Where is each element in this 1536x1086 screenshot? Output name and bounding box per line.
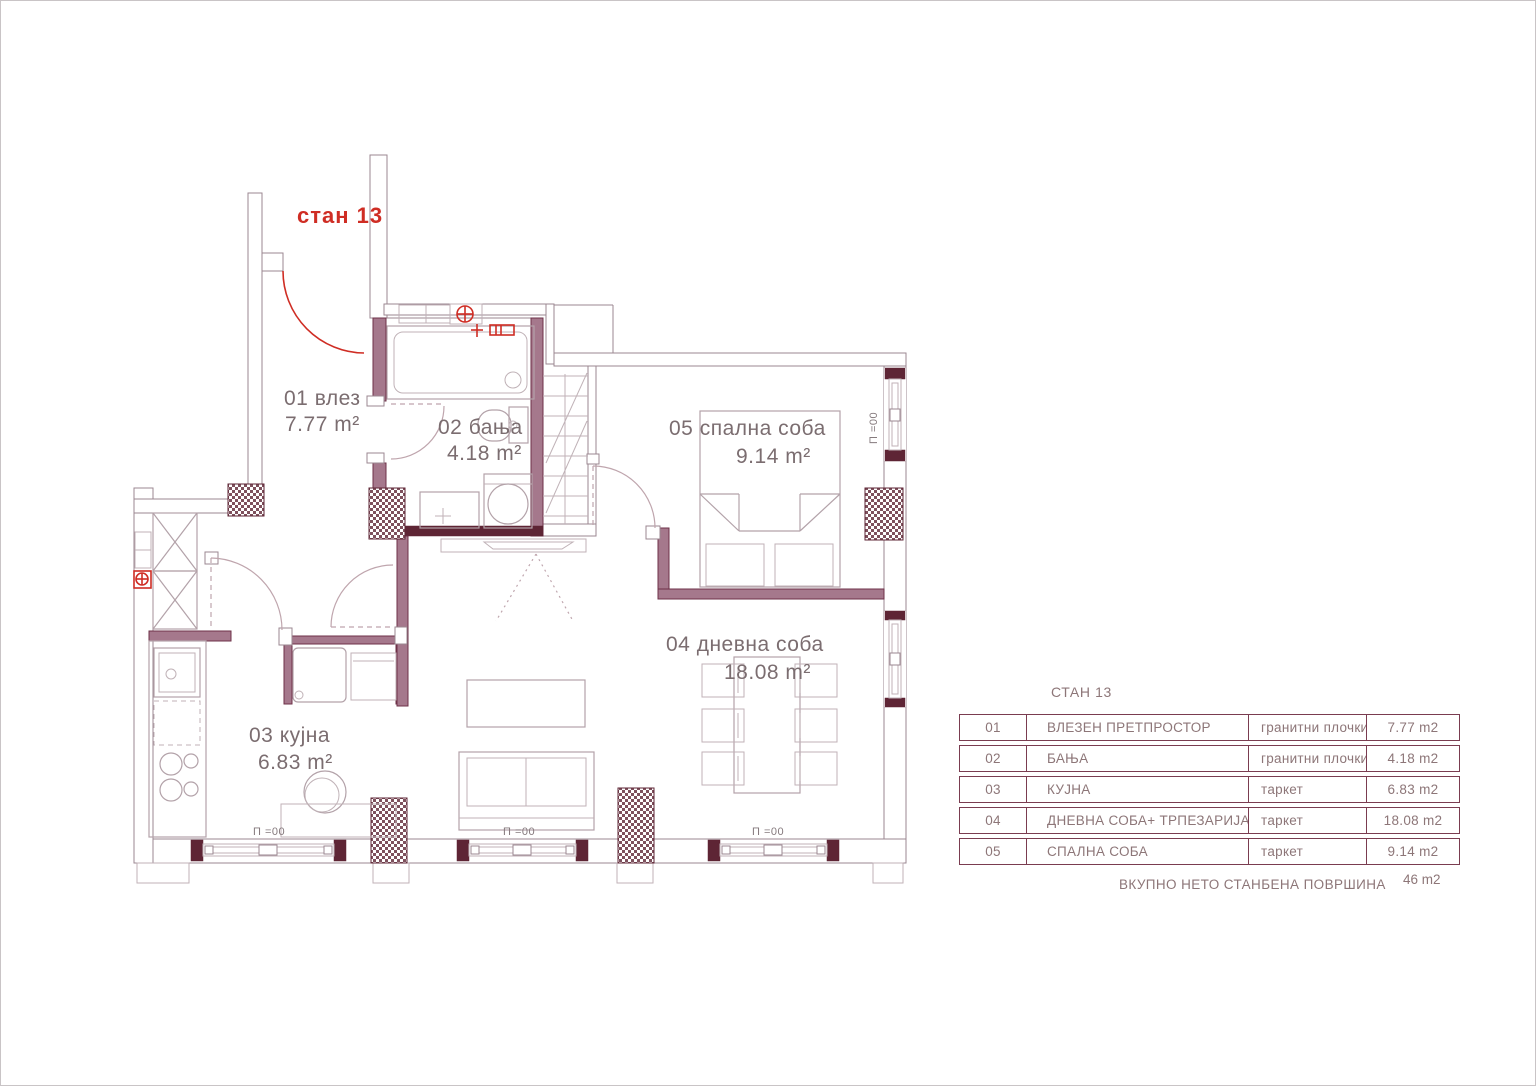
kitchen-sink — [154, 648, 200, 697]
row-number: 01 — [960, 715, 1027, 740]
parapet-label-3: П =00 — [752, 826, 784, 838]
room-area-kitchen: 6.83 m² — [258, 751, 333, 774]
row-name: ДНЕВНА СОБА+ ТРПЕЗАРИЈА — [1027, 808, 1249, 833]
washing-machine — [484, 474, 532, 528]
room-label-bedroom: 05 спална соба — [669, 417, 826, 440]
room-area-entry: 7.77 m² — [285, 413, 360, 436]
room-label-entry: 01 влез — [284, 387, 360, 410]
row-area: 18.08 m2 — [1367, 808, 1459, 833]
area-legend-table: СТАН 13 01 ВЛЕЗЕН ПРЕТПРОСТОР гранитни п… — [959, 684, 1460, 895]
table-row: 05 СПАЛНА СОБА таркет 9.14 m2 — [959, 838, 1460, 865]
door-hall — [331, 565, 393, 627]
row-number: 05 — [960, 839, 1027, 864]
room-label-bath: 02 бања — [438, 416, 523, 439]
table-row: 04 ДНЕВНА СОБА+ ТРПЕЗАРИЈА таркет 18.08 … — [959, 807, 1460, 834]
outer-walls — [134, 155, 906, 883]
row-floor: таркет — [1249, 808, 1367, 833]
sofa — [459, 752, 594, 830]
bathtub — [387, 326, 534, 399]
room-area-bath: 4.18 m² — [447, 442, 522, 465]
parapet-label-2: П =00 — [503, 826, 535, 838]
row-floor: гранитни плочки — [1249, 746, 1367, 771]
room-area-living: 18.08 m² — [724, 661, 811, 684]
total-label: ВКУПНО НЕТО СТАНБЕНА ПОВРШИНА — [1119, 877, 1386, 892]
row-name: БАЊА — [1027, 746, 1249, 771]
row-name: СПАЛНА СОБА — [1027, 839, 1249, 864]
kitchen-counter — [149, 641, 206, 837]
electrical-symbol-top — [457, 306, 473, 322]
row-number: 03 — [960, 777, 1027, 802]
row-floor: таркет — [1249, 777, 1367, 802]
bathroom-sink — [420, 492, 479, 528]
row-number: 02 — [960, 746, 1027, 771]
window-living-right — [708, 840, 839, 861]
table-title: СТАН 13 — [1051, 684, 1460, 700]
coffee-table — [467, 680, 585, 727]
window-living-side — [884, 611, 906, 707]
parapet-label-4: П =00 — [868, 412, 880, 444]
door-entry-closet — [211, 558, 282, 630]
floor-plan-sheet: стан 13 01 влез 7.77 m² 02 бања 4.18 m² … — [0, 0, 1536, 1086]
row-area: 7.77 m2 — [1367, 715, 1459, 740]
kitchen-island — [293, 648, 396, 702]
entrance-door-swing — [283, 271, 364, 353]
row-name: ВЛЕЗЕН ПРЕТПРОСТОР — [1027, 715, 1249, 740]
row-name: КУЈНА — [1027, 777, 1249, 802]
table-row: 03 КУЈНА таркет 6.83 m2 — [959, 776, 1460, 803]
row-area: 9.14 m2 — [1367, 839, 1459, 864]
room-label-kitchen: 03 кујна — [249, 724, 330, 747]
parapet-label-1: П =00 — [253, 826, 285, 838]
row-floor: гранитни плочки — [1249, 715, 1367, 740]
window-living-left — [457, 840, 588, 861]
table-row: 02 БАЊА гранитни плочки 4.18 m2 — [959, 745, 1460, 772]
window-bedroom — [884, 368, 906, 461]
door-bathroom — [391, 404, 444, 459]
row-area: 6.83 m2 — [1367, 777, 1459, 802]
windows — [191, 368, 906, 861]
stove — [160, 753, 198, 801]
row-floor: таркет — [1249, 839, 1367, 864]
window-kitchen — [191, 840, 346, 861]
staircase — [543, 373, 588, 524]
floor-plan-drawing: стан 13 01 влез 7.77 m² 02 бања 4.18 m² … — [1, 1, 1536, 1086]
table-footer: ВКУПНО НЕТО СТАНБЕНА ПОВРШИНА 46 m2 — [959, 869, 1460, 895]
table-row: 01 ВЛЕЗЕН ПРЕТПРОСТОР гранитни плочки 7.… — [959, 714, 1460, 741]
total-value: 46 m2 — [1403, 872, 1441, 887]
row-number: 04 — [960, 808, 1027, 833]
door-bedroom — [593, 466, 655, 528]
row-area: 4.18 m2 — [1367, 746, 1459, 771]
room-area-bedroom: 9.14 m² — [736, 445, 811, 468]
unit-label: стан 13 — [297, 203, 383, 228]
opening-living — [441, 539, 586, 621]
room-label-living: 04 дневна соба — [666, 633, 824, 656]
